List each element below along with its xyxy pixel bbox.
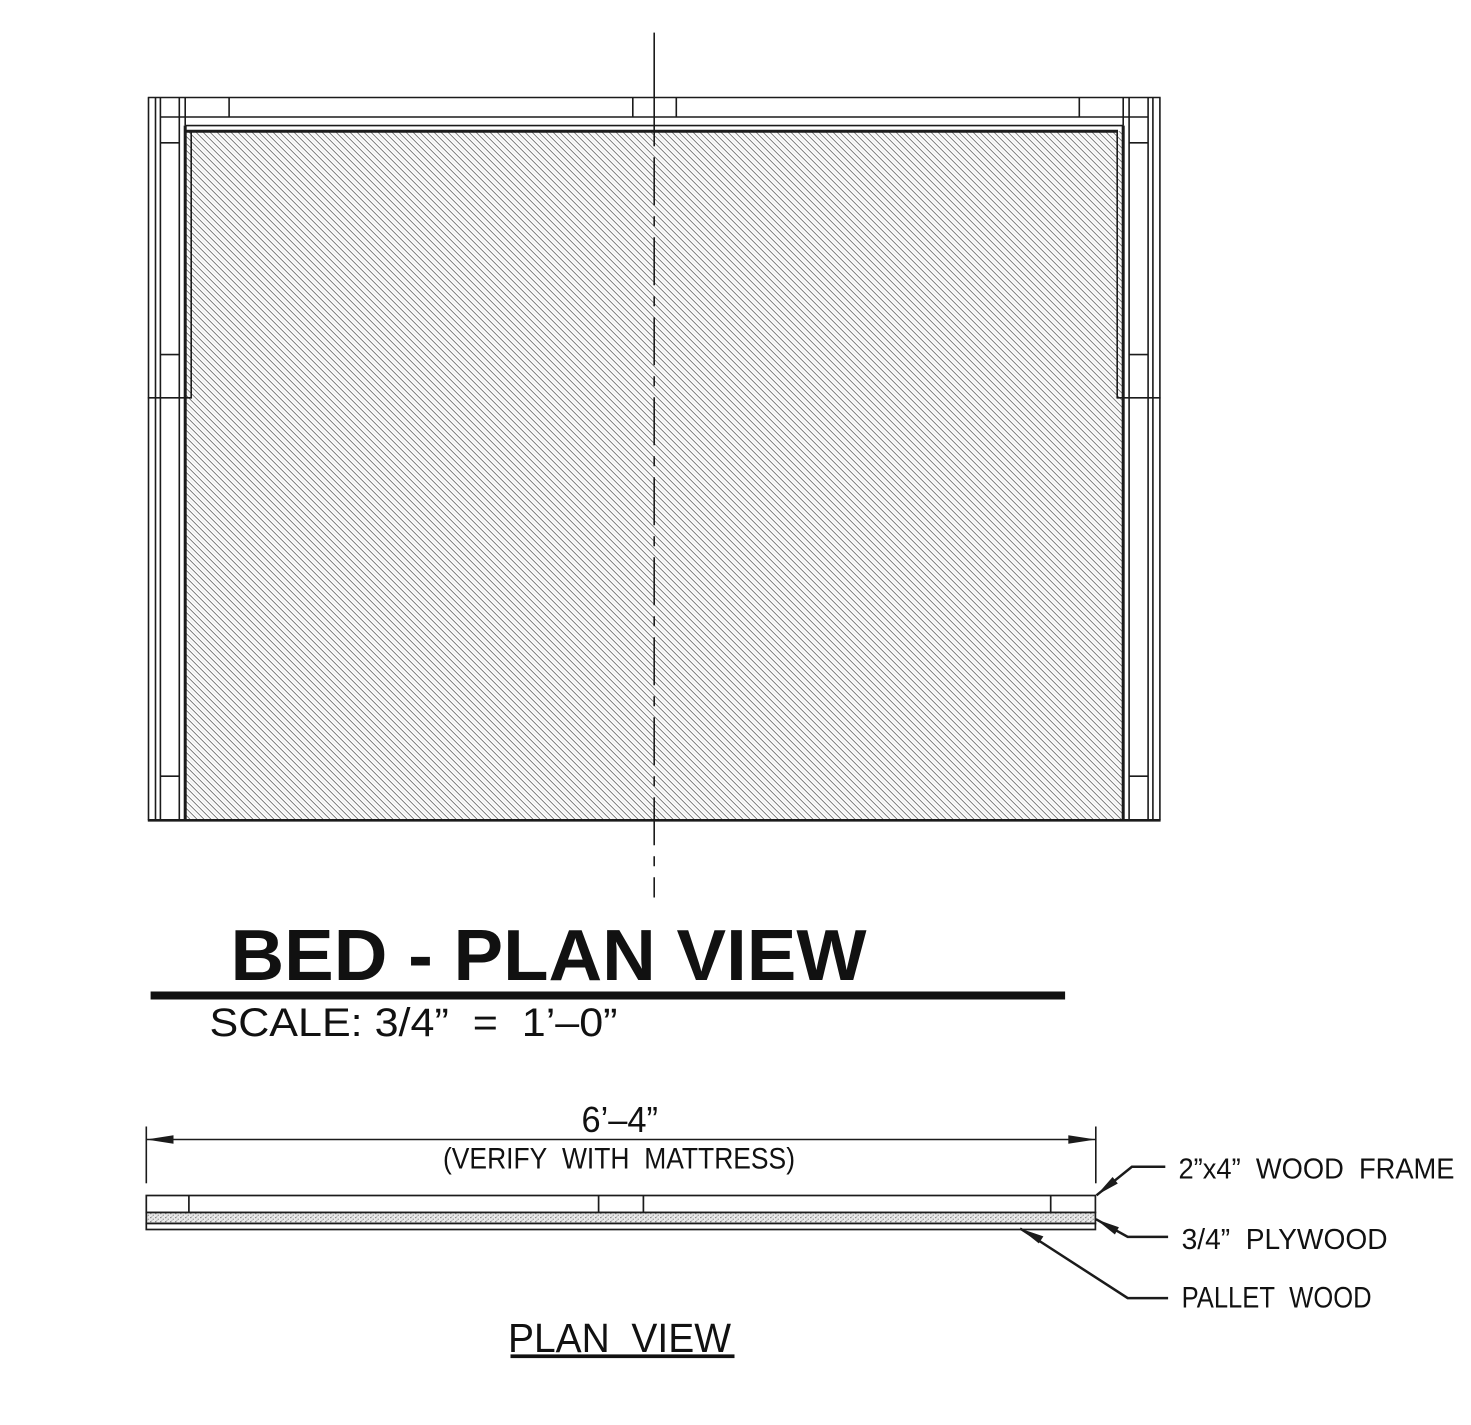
svg-text:SCALE: 3/4” = 1’–0”: SCALE: 3/4” = 1’–0”: [210, 1001, 618, 1045]
svg-text:6’–4”: 6’–4”: [582, 1099, 659, 1140]
svg-text:(VERIFY WITH MATTRESS): (VERIFY WITH MATTRESS): [443, 1143, 795, 1176]
svg-text:PALLET WOOD: PALLET WOOD: [1182, 1282, 1372, 1315]
svg-text:BED - PLAN VIEW: BED - PLAN VIEW: [231, 916, 867, 996]
svg-text:2”x4” WOOD FRAME: 2”x4” WOOD FRAME: [1179, 1154, 1455, 1186]
svg-text:PLAN VIEW: PLAN VIEW: [508, 1315, 731, 1361]
svg-text:3/4” PLYWOOD: 3/4” PLYWOOD: [1182, 1224, 1388, 1256]
